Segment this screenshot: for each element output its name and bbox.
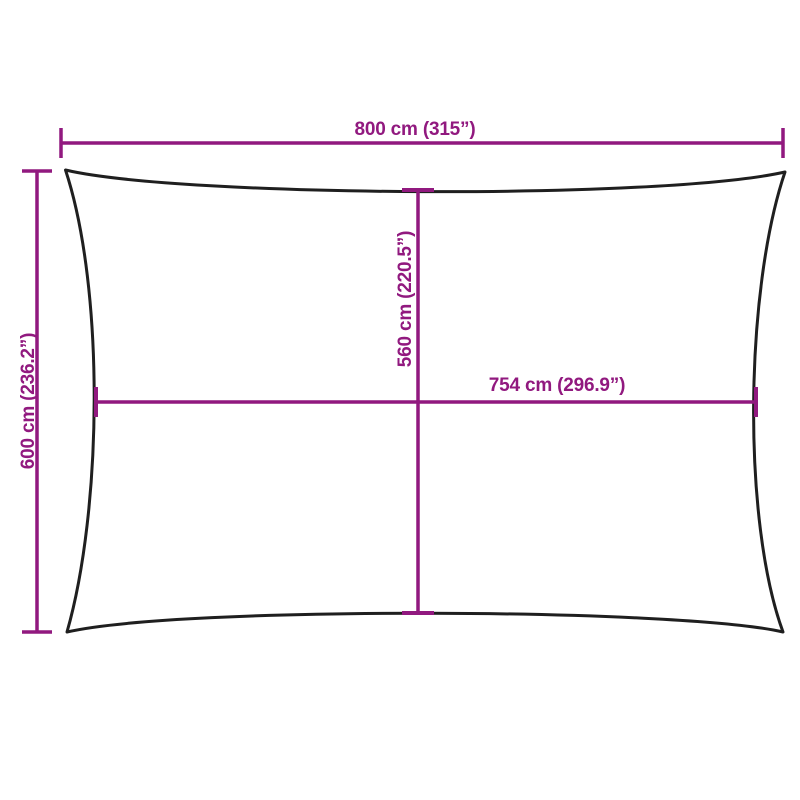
inner-height-label: 560 cm (220.5”) xyxy=(395,231,416,367)
dimension-overall-height: 600 cm (236.2”) xyxy=(18,171,52,632)
product-dimension-diagram: 800 cm (315”) 600 cm (236.2”) 560 cm (22… xyxy=(0,0,800,800)
dimension-diagram-canvas: 800 cm (315”) 600 cm (236.2”) 560 cm (22… xyxy=(0,0,800,800)
dimension-inner-width: 754 cm (296.9”) xyxy=(96,375,756,417)
overall-height-label: 600 cm (236.2”) xyxy=(18,333,39,469)
inner-width-label: 754 cm (296.9”) xyxy=(489,375,625,396)
dimension-overall-width: 800 cm (315”) xyxy=(61,119,783,158)
overall-width-label: 800 cm (315”) xyxy=(355,119,476,140)
